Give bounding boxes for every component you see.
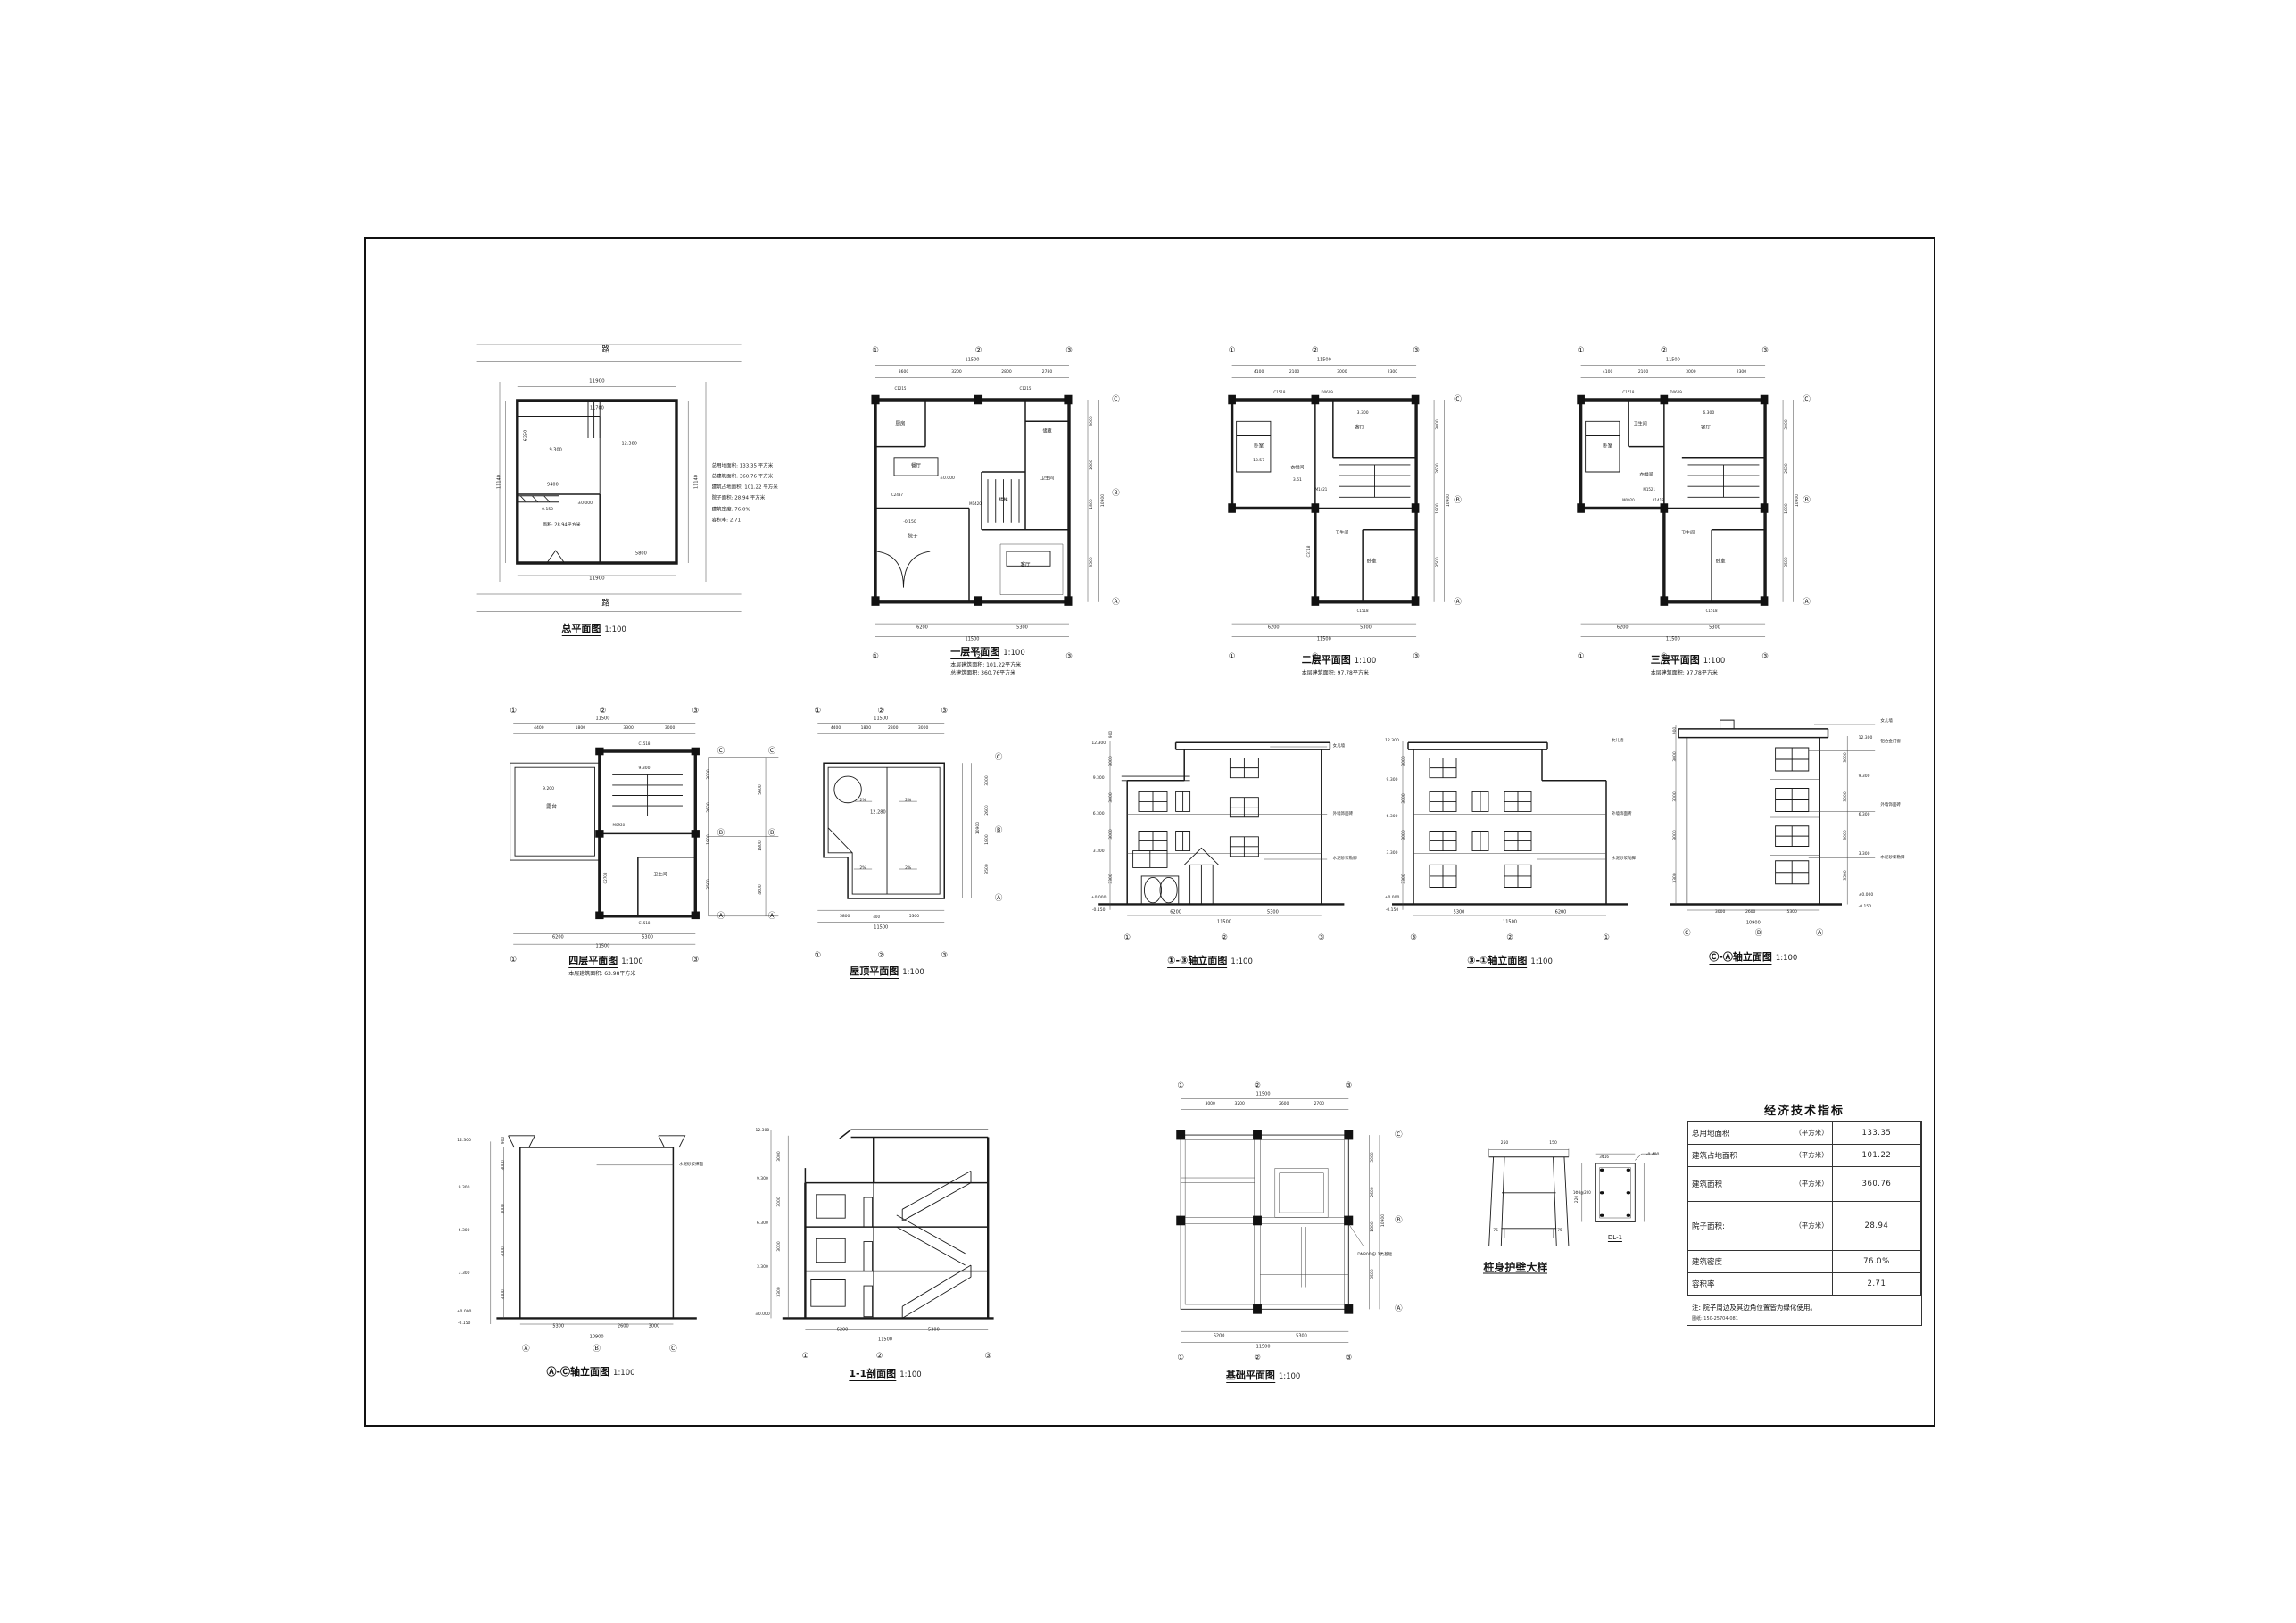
drawing-notes: 本层建筑面积: 97.78平方米 bbox=[1302, 669, 1377, 678]
annotation: 3500 bbox=[1437, 558, 1441, 567]
annotation: C1215 bbox=[1020, 387, 1032, 391]
annotation: ① bbox=[872, 652, 879, 660]
annotation: 3300 bbox=[501, 1289, 506, 1299]
indicator-value: 101.22 bbox=[1832, 1145, 1920, 1167]
annotation: 2% bbox=[859, 867, 866, 872]
annotation: 11500 bbox=[596, 717, 610, 722]
annotation: 11900 bbox=[589, 379, 605, 385]
annotation: ① bbox=[510, 956, 517, 965]
annotation: 2780 bbox=[1042, 370, 1052, 375]
drawing-scale: 1:100 bbox=[1703, 657, 1726, 666]
annotation: Ⓐ bbox=[1816, 930, 1824, 938]
annotation: 13.57 bbox=[1253, 460, 1264, 464]
third-floor-plan: ①②③115004100210030002300ⒸⒷⒶ3000260018003… bbox=[1539, 327, 1836, 689]
annotation: 总建筑面积: 360.76 平方米 bbox=[712, 475, 774, 480]
annotation: 3000 bbox=[777, 1197, 782, 1206]
annotation: 11900 bbox=[589, 576, 605, 582]
annotation: ③ bbox=[1761, 652, 1769, 660]
annotation: ② bbox=[1221, 934, 1228, 942]
annotation: Ⓐ bbox=[995, 895, 1003, 903]
annotation: 75 bbox=[1557, 1230, 1562, 1234]
annotation: 3500 bbox=[1090, 558, 1095, 567]
annotation: ③ bbox=[692, 708, 699, 716]
annotation: 3000 bbox=[777, 1151, 782, 1161]
annotation: 客厅 bbox=[1355, 426, 1364, 432]
annotation: ① bbox=[510, 708, 517, 716]
annotation: 3000 bbox=[1844, 792, 1848, 802]
annotation: 女儿墙 bbox=[1333, 745, 1346, 749]
drawing-scale: 1:100 bbox=[621, 957, 643, 966]
annotation: 6200 bbox=[916, 625, 928, 630]
annotation: M0920 bbox=[613, 824, 626, 827]
table-notes: 注: 院子周边及其边角位置皆为绿化使用。 图纸: 150-25704-081 bbox=[1687, 1296, 1921, 1323]
annotation: 3500 bbox=[708, 879, 712, 889]
annotation: 3000 bbox=[665, 727, 675, 732]
annotation: 9.300 bbox=[1859, 774, 1870, 779]
annotation: 3000 bbox=[1402, 756, 1406, 766]
annotation: ③ bbox=[1410, 934, 1417, 942]
table-note-line: 注: 院子周边及其边角位置皆为绿化使用。 bbox=[1692, 1303, 1917, 1312]
annotation: ±0.000 bbox=[577, 501, 593, 506]
annotation: ② bbox=[877, 708, 884, 716]
annotation: 4100 bbox=[1254, 370, 1264, 375]
annotation: M1420 bbox=[969, 502, 982, 506]
drawing-scale: 1:100 bbox=[1355, 657, 1377, 666]
annotation: 2100 bbox=[1289, 370, 1299, 375]
annotation: 3000 bbox=[1715, 911, 1725, 915]
annotation: ② bbox=[877, 952, 884, 960]
annotation: 3000 bbox=[501, 1246, 506, 1256]
annotation: 储藏 bbox=[1042, 430, 1051, 435]
annotation: 3000 bbox=[777, 1241, 782, 1251]
annotation: 4100 bbox=[1603, 370, 1612, 375]
annotation: 3000 bbox=[1674, 830, 1678, 840]
annotation: Ⓐ bbox=[1112, 599, 1120, 607]
annotation: 女儿墙 bbox=[1612, 739, 1624, 743]
annotation: C1518 bbox=[1622, 391, 1634, 394]
annotation: 11500 bbox=[1666, 638, 1680, 642]
annotation: M0920 bbox=[1622, 499, 1635, 502]
annotation: 水泥砂浆勒脚 bbox=[1333, 857, 1357, 862]
annotation: 3300 bbox=[1109, 874, 1114, 883]
annotation: 150 bbox=[1549, 1142, 1557, 1147]
annotation: 建筑密度: 76.0% bbox=[712, 508, 750, 513]
annotation: 1Φ8@200 bbox=[1573, 1191, 1591, 1195]
annotation: 10900 bbox=[1382, 1214, 1387, 1227]
second-floor-plan: ①②③115004100210030002300ⒸⒷⒶ3000260018003… bbox=[1190, 327, 1488, 689]
annotation: Ⓐ bbox=[522, 1346, 530, 1354]
table-row: 总用地面积（平方米）133.35 bbox=[1688, 1122, 1921, 1145]
annotation: 路 bbox=[601, 347, 609, 355]
annotation: 12.300 bbox=[1859, 737, 1873, 741]
annotation: 12.300 bbox=[1385, 739, 1399, 743]
annotation: 3000 bbox=[1674, 792, 1678, 802]
annotation: 2600 bbox=[708, 802, 712, 812]
annotation: 6.300 bbox=[1093, 812, 1105, 816]
drawing-title: 三层平面图 bbox=[1651, 654, 1700, 667]
annotation: Ⓑ bbox=[995, 827, 1003, 835]
annotation: Ⓑ bbox=[717, 830, 725, 838]
drawing-caption: ①-③轴立面图1:100 bbox=[1167, 950, 1253, 967]
annotation: 3000 bbox=[708, 770, 712, 780]
drawing-title: 二层平面图 bbox=[1302, 654, 1351, 667]
annotation: 3.61 bbox=[1293, 479, 1302, 484]
drawing-notes: 本层建筑面积: 101.22平方米总建筑面积: 360.76平方米 bbox=[950, 661, 1025, 678]
annotation: C1418 bbox=[1653, 499, 1664, 502]
drawing-caption: 1-1剖面图1:100 bbox=[849, 1363, 921, 1380]
annotation: 6200 bbox=[1214, 1334, 1225, 1338]
drawing-title: 屋顶平面图 bbox=[850, 965, 899, 979]
indicator-value: 76.0% bbox=[1832, 1251, 1920, 1273]
annotation: 9.300 bbox=[1387, 779, 1398, 783]
indicator-label: 建筑密度 bbox=[1688, 1251, 1833, 1273]
annotation: 3300 bbox=[623, 727, 633, 732]
annotation: -0.150 bbox=[1386, 909, 1399, 914]
annotation: 3000 bbox=[1109, 829, 1114, 839]
annotation: 1800 bbox=[986, 834, 991, 844]
annotation: 5300 bbox=[552, 1325, 564, 1329]
annotation: 卫生间 bbox=[1335, 531, 1348, 535]
annotation: ② bbox=[600, 708, 607, 716]
annotation: 2600 bbox=[1090, 460, 1095, 469]
annotation: 11500 bbox=[1317, 638, 1331, 642]
annotation: ③ bbox=[941, 708, 948, 716]
annotation: 900 bbox=[1109, 731, 1114, 739]
annotation: 水泥砂浆勒脚 bbox=[1612, 857, 1636, 862]
elevation-1-3: 12.3009.3006.3003.300±0.000-0.1509003000… bbox=[1082, 691, 1367, 972]
drawing-sheet-frame: 路119001170062509.30012.38011140111409400… bbox=[364, 237, 1935, 1427]
annotation: C2708 bbox=[604, 872, 608, 883]
annotation: ① bbox=[1578, 652, 1585, 660]
annotation: 9.300 bbox=[550, 449, 562, 453]
annotation: 路 bbox=[601, 600, 609, 608]
annotation: 2% bbox=[905, 867, 911, 872]
table-box: 总用地面积（平方米）133.35建筑占地面积（平方米）101.22建筑面积（平方… bbox=[1687, 1121, 1922, 1326]
drawing-title: 四层平面图 bbox=[568, 955, 618, 968]
annotation: 11700 bbox=[590, 406, 604, 410]
annotation: 5300 bbox=[909, 915, 919, 920]
drawing-caption: 一层平面图1:100 本层建筑面积: 101.22平方米总建筑面积: 360.7… bbox=[950, 642, 1025, 678]
drawing-scale: 1:100 bbox=[604, 625, 626, 634]
annotation: 2100 bbox=[1638, 370, 1648, 375]
annotation: 10900 bbox=[590, 1335, 604, 1339]
annotation: -0.150 bbox=[1092, 909, 1106, 914]
annotation: 2300 bbox=[1388, 370, 1397, 375]
annotation: 12.300 bbox=[457, 1139, 471, 1144]
annotation: 6250 bbox=[524, 429, 528, 441]
drawing-caption: 屋顶平面图1:100 bbox=[850, 961, 924, 978]
annotation: 3000 bbox=[1402, 794, 1406, 804]
annotation: 5300 bbox=[1296, 1334, 1307, 1338]
annotation: ③ bbox=[1065, 347, 1073, 355]
annotation: 3000 bbox=[1109, 756, 1114, 766]
annotation: Ⓐ bbox=[1454, 599, 1462, 607]
drawing-title: Ⓐ-Ⓒ轴立面图 bbox=[546, 1366, 609, 1379]
annotation: ① bbox=[872, 347, 879, 355]
annotation: 1800 bbox=[758, 840, 763, 850]
annotation: 11500 bbox=[874, 717, 888, 722]
annotation: 3.300 bbox=[1859, 853, 1870, 857]
annotation: Ⓐ bbox=[717, 913, 725, 921]
annotation: 3500 bbox=[986, 864, 991, 874]
annotation: ③ bbox=[692, 956, 699, 965]
drawing-caption: 基础平面图1:100 bbox=[1226, 1365, 1301, 1382]
annotation: 卫生间 bbox=[1040, 477, 1054, 482]
fourth-floor-plan: ①②③115004400180033003000露台9.2009.300卫生间M… bbox=[485, 692, 804, 987]
annotation: ±0.000 bbox=[1091, 897, 1107, 901]
annotation: Ⓑ bbox=[768, 830, 776, 838]
table-row: 建筑面积（平方米）360.76 bbox=[1688, 1167, 1921, 1202]
annotation: ③ bbox=[1345, 1354, 1352, 1362]
annotation: 3000 bbox=[1674, 751, 1678, 761]
annotation: 400 bbox=[873, 915, 880, 919]
drawing-notes: 本层建筑面积: 97.78平方米 bbox=[1651, 669, 1726, 678]
annotation: 11140 bbox=[498, 475, 502, 489]
annotation: ① bbox=[814, 708, 821, 716]
pile-wall-detail: 25015075752203Φ161Φ8@200-0.400桩身护壁大样DL-1 bbox=[1449, 1128, 1670, 1290]
annotation: 6200 bbox=[1555, 910, 1567, 915]
annotation: C1518 bbox=[639, 742, 651, 746]
annotation: Ⓒ bbox=[995, 753, 1003, 761]
drawing-scale: 1:100 bbox=[1776, 954, 1798, 963]
indicator-label: 建筑占地面积（平方米） bbox=[1688, 1145, 1833, 1167]
annotation: 楼梯 bbox=[999, 499, 1007, 503]
drawing-caption: ③-①轴立面图1:100 bbox=[1467, 950, 1553, 967]
annotation: ±0.000 bbox=[940, 477, 955, 482]
annotation: C1518 bbox=[639, 922, 651, 925]
annotation: 10900 bbox=[1446, 494, 1451, 507]
annotation: 5300 bbox=[1454, 910, 1465, 915]
annotation: 3000 bbox=[1402, 830, 1406, 840]
site-plan: 路119001170062509.30012.38011140111409400… bbox=[470, 332, 765, 644]
annotation: 10900 bbox=[977, 822, 982, 834]
annotation: 2600 bbox=[1279, 1103, 1289, 1107]
annotation: ① bbox=[1229, 347, 1236, 355]
annotation: C2437 bbox=[891, 493, 903, 497]
annotation: 1800 bbox=[1372, 1221, 1376, 1231]
annotation: 11500 bbox=[1317, 359, 1331, 363]
indicator-label: 建筑面积（平方米） bbox=[1688, 1167, 1833, 1202]
annotation: 6200 bbox=[1617, 625, 1629, 630]
drawing-title: 总平面图 bbox=[561, 623, 601, 636]
annotation: 3000 bbox=[501, 1160, 506, 1170]
annotation: 6200 bbox=[1170, 910, 1181, 915]
section-1-1: 12.3009.3006.3003.300±0.0003000300030003… bbox=[742, 1089, 1028, 1383]
annotation: 1800 bbox=[1437, 503, 1441, 513]
annotation: 2600 bbox=[1745, 911, 1755, 915]
annotation: ① bbox=[814, 952, 821, 960]
annotation: ② bbox=[1312, 347, 1319, 355]
table-row: 建筑密度76.0% bbox=[1688, 1251, 1921, 1273]
drawing-scale: 1:100 bbox=[1231, 957, 1253, 966]
annotation: 2600 bbox=[986, 805, 991, 815]
annotation: ±0.000 bbox=[755, 1313, 770, 1318]
annotation: 3500 bbox=[1844, 870, 1848, 880]
annotation: 女儿墙 bbox=[1880, 720, 1893, 725]
annotation: 4400 bbox=[534, 727, 543, 732]
annotation: -0.150 bbox=[541, 508, 554, 512]
annotation: 3000 bbox=[986, 775, 991, 785]
annotation: 2600 bbox=[1372, 1187, 1376, 1197]
elevation-3-1: 12.3009.3006.3003.300±0.000-0.1503000300… bbox=[1376, 691, 1644, 972]
drawing-scale: 1:100 bbox=[902, 968, 924, 977]
annotation: 卫生间 bbox=[653, 873, 667, 877]
annotation: C1518 bbox=[1706, 609, 1718, 613]
table-title: 经济技术指标 bbox=[1687, 1101, 1922, 1118]
annotation: 3.300 bbox=[757, 1266, 768, 1271]
annotation: 1800 bbox=[576, 727, 585, 732]
annotation: C1518 bbox=[1273, 391, 1285, 394]
annotation: 建筑占地面积: 101.22 平方米 bbox=[712, 485, 778, 491]
annotation: 9.200 bbox=[543, 788, 554, 792]
annotation: ② bbox=[975, 347, 982, 355]
annotation: ① bbox=[1229, 652, 1236, 660]
elevation-A-C: 12.3009.3006.3003.300±0.000-0.1509003000… bbox=[443, 1089, 738, 1383]
annotation: -0.150 bbox=[458, 1322, 471, 1327]
annotation: -0.150 bbox=[903, 520, 916, 525]
annotation: ② bbox=[1254, 1354, 1261, 1362]
annotation: DL-1 bbox=[1608, 1235, 1622, 1242]
annotation: Ⓒ bbox=[1803, 396, 1811, 404]
annotation: 11140 bbox=[695, 475, 700, 489]
annotation: 1800 bbox=[861, 727, 871, 732]
annotation: Ⓐ bbox=[1803, 599, 1811, 607]
annotation: 衣帽间 bbox=[1639, 474, 1653, 478]
annotation: 3500 bbox=[1786, 558, 1790, 567]
annotation: C3718 bbox=[1307, 546, 1311, 558]
annotation: 9.300 bbox=[639, 767, 651, 772]
annotation: 10900 bbox=[1101, 494, 1106, 507]
annotation: 院子 bbox=[908, 534, 917, 540]
annotation: 衣帽间 bbox=[1290, 466, 1304, 470]
annotation: 容积率: 2.71 bbox=[712, 518, 741, 524]
annotation: Ⓑ bbox=[1395, 1217, 1403, 1225]
annotation: 3000 bbox=[501, 1205, 506, 1214]
annotation: 5800 bbox=[635, 551, 647, 556]
annotation: 3300 bbox=[1402, 874, 1406, 883]
annotation: 外墙饰面砖 bbox=[1333, 812, 1354, 816]
annotation: 3000 bbox=[1844, 753, 1848, 763]
annotation: Ⓑ bbox=[1803, 497, 1811, 505]
annotation: C1518 bbox=[1357, 609, 1369, 613]
annotation: 12.380 bbox=[621, 443, 637, 447]
indicator-label: 容积率 bbox=[1688, 1273, 1833, 1296]
drawing-title: Ⓒ-Ⓐ轴立面图 bbox=[1709, 951, 1772, 965]
annotation: 11500 bbox=[966, 359, 980, 363]
table-row: 容积率2.71 bbox=[1688, 1273, 1921, 1296]
annotation: ③ bbox=[1065, 652, 1073, 660]
annotation: Ⓐ bbox=[1395, 1305, 1403, 1313]
annotation: 5300 bbox=[642, 935, 653, 940]
annotation: 1800 bbox=[708, 834, 712, 844]
annotation: ② bbox=[1254, 1082, 1261, 1090]
annotation: 面积: 28.94平方米 bbox=[543, 524, 581, 528]
table-row: 院子面积:（平方米）28.94 bbox=[1688, 1202, 1921, 1251]
annotation: 11500 bbox=[1256, 1345, 1271, 1349]
annotation: Ⓒ bbox=[669, 1346, 677, 1354]
annotation: M1521 bbox=[1643, 488, 1655, 492]
annotation: 11500 bbox=[1503, 920, 1517, 924]
annotation: 铝合金门窗 bbox=[1880, 740, 1901, 744]
annotation: 2% bbox=[905, 799, 911, 804]
annotation: Ⓒ bbox=[1454, 396, 1462, 404]
annotation: -0.400 bbox=[1646, 1154, 1660, 1158]
annotation: ③ bbox=[1761, 347, 1769, 355]
annotation: 3000 bbox=[1109, 792, 1114, 802]
annotation: 卧室 bbox=[1367, 560, 1377, 566]
annotation: Ⓒ bbox=[1395, 1131, 1403, 1139]
annotation: 卫生间 bbox=[1634, 423, 1647, 427]
annotation: 5300 bbox=[1016, 625, 1028, 630]
annotation: Ⓒ bbox=[768, 748, 776, 756]
annotation: Ⓐ bbox=[768, 913, 776, 921]
drawing-scale: 1:100 bbox=[1530, 957, 1553, 966]
annotation: 3.300 bbox=[1387, 851, 1398, 856]
annotation: 2800 bbox=[1001, 370, 1011, 375]
annotation: 客厅 bbox=[1701, 426, 1711, 432]
annotation: ③ bbox=[1318, 934, 1325, 942]
annotation: 3000 bbox=[1786, 420, 1790, 430]
indicator-value: 133.35 bbox=[1832, 1122, 1920, 1145]
annotation: 2600 bbox=[1786, 463, 1790, 473]
annotation: ② bbox=[876, 1353, 883, 1361]
annotation: 250 bbox=[1501, 1142, 1509, 1147]
annotation: 院子面积: 28.94 平方米 bbox=[712, 497, 766, 502]
indicator-value: 360.76 bbox=[1832, 1167, 1920, 1202]
annotation: 3000 bbox=[1686, 370, 1695, 375]
annotation: 2300 bbox=[1737, 370, 1746, 375]
annotation: 2300 bbox=[888, 727, 898, 732]
annotation: M1421 bbox=[1315, 488, 1328, 492]
annotation: 11500 bbox=[1256, 1092, 1271, 1097]
annotation: 3200 bbox=[951, 370, 961, 375]
annotation: 12.300 bbox=[1091, 742, 1106, 747]
annotation: Ⓒ bbox=[1112, 396, 1120, 404]
annotation: ② bbox=[1661, 347, 1668, 355]
drawing-scale: 1:100 bbox=[899, 1370, 922, 1379]
table-row: 建筑占地面积（平方米）101.22 bbox=[1688, 1145, 1921, 1167]
annotation: ③ bbox=[1413, 652, 1420, 660]
annotation: 1800 bbox=[1090, 500, 1095, 509]
annotation: 6200 bbox=[552, 935, 564, 940]
annotation: ① bbox=[1603, 934, 1610, 942]
elevation-C-A: 900300030003000330012.3009.3006.3003.300… bbox=[1648, 678, 1925, 968]
annotation: 3000 bbox=[1437, 420, 1441, 430]
annotation: Ⓑ bbox=[593, 1346, 601, 1354]
annotation: 3300 bbox=[777, 1287, 782, 1296]
annotation: 3000 bbox=[649, 1325, 660, 1329]
annotation: ③ bbox=[1345, 1082, 1352, 1090]
indicator-label: 院子面积:（平方米） bbox=[1688, 1202, 1833, 1251]
annotation: 2600 bbox=[618, 1325, 629, 1329]
drawing-caption: 总平面图1:100 bbox=[561, 618, 626, 635]
annotation: 11500 bbox=[596, 945, 610, 949]
annotation: 10900 bbox=[1746, 921, 1761, 925]
annotation: -0.150 bbox=[1859, 906, 1872, 910]
annotation: 水泥砂浆抹面 bbox=[679, 1163, 703, 1168]
economic-indicators-panel: 经济技术指标 总用地面积（平方米）133.35建筑占地面积（平方米）101.22… bbox=[1687, 1101, 1922, 1326]
annotation: 露台 bbox=[546, 805, 557, 810]
annotation: ±0.000 bbox=[1859, 894, 1874, 898]
drawing-caption: 二层平面图1:100 本层建筑面积: 97.78平方米 bbox=[1302, 650, 1377, 678]
annotation: 6.300 bbox=[1703, 412, 1714, 417]
annotation: 3.300 bbox=[1357, 412, 1369, 417]
drawing-title: ③-①轴立面图 bbox=[1467, 955, 1527, 968]
drawing-scale: 1:100 bbox=[613, 1369, 635, 1378]
annotation: 6.300 bbox=[1859, 814, 1870, 818]
annotation: 6200 bbox=[1268, 625, 1280, 630]
annotation: 6.300 bbox=[757, 1222, 768, 1227]
